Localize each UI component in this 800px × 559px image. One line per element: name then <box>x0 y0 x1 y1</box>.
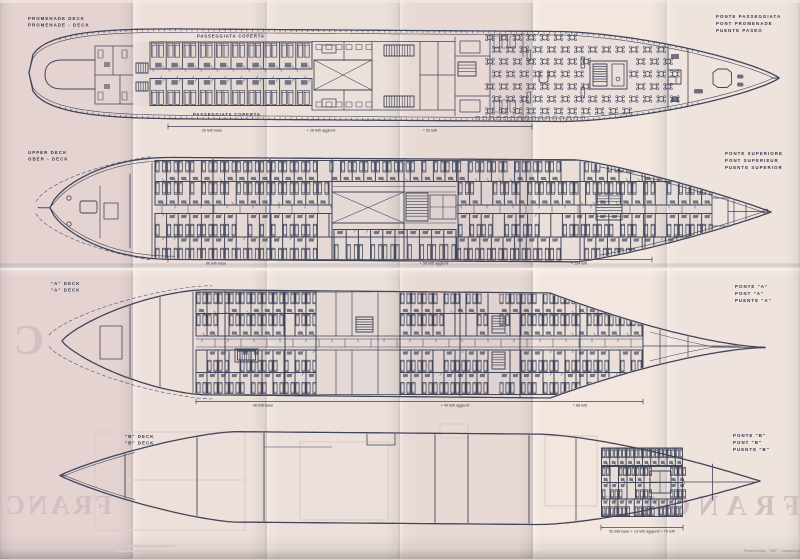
svg-text:PASSEGGIATA COPERTA: PASSEGGIATA COPERTA <box>193 112 261 117</box>
svg-text:= 154 letti: = 154 letti <box>571 262 588 266</box>
svg-text:+ 58 letti aggiunti: + 58 letti aggiunti <box>420 262 449 266</box>
svg-text:+ 40 letti aggiunti: + 40 letti aggiunti <box>441 404 470 408</box>
svg-text:PUENTE "A": PUENTE "A" <box>735 298 772 303</box>
svg-text:48 letti base: 48 letti base <box>253 404 273 408</box>
svg-text:Printed in Italy - "LIST" - Ge: Printed in Italy - "LIST" - Genova Foce <box>744 549 800 553</box>
svg-text:= 52 letti: = 52 letti <box>423 129 438 133</box>
svg-text:PASSEGGIATA COPERTA: PASSEGGIATA COPERTA <box>197 34 265 39</box>
svg-text:UPPER DECK: UPPER DECK <box>28 150 67 155</box>
svg-text:PONT "B": PONT "B" <box>733 440 762 445</box>
svg-text:"A" DECK: "A" DECK <box>51 281 80 286</box>
svg-text:C: C <box>14 318 44 364</box>
svg-text:PONT PROMENADE: PONT PROMENADE <box>716 21 773 26</box>
svg-text:+ 26 letti aggiunti: + 26 letti aggiunti <box>307 129 336 133</box>
svg-text:26 letti base: 26 letti base <box>202 129 222 133</box>
svg-text:PUENTE "B": PUENTE "B" <box>733 447 770 452</box>
svg-text:= 88 letti: = 88 letti <box>573 404 588 408</box>
svg-text:PROMENADE - DECK: PROMENADE - DECK <box>28 23 90 28</box>
svg-text:PONT SUPERIEUR: PONT SUPERIEUR <box>725 158 779 163</box>
svg-text:PONTE PASSEGGIATA: PONTE PASSEGGIATA <box>716 14 781 19</box>
svg-text:PUENTE PASEO: PUENTE PASEO <box>716 28 763 33</box>
svg-text:PONT "A": PONT "A" <box>735 291 764 296</box>
svg-text:OBER - DECK: OBER - DECK <box>28 157 69 162</box>
svg-text:96 letti base: 96 letti base <box>206 262 226 266</box>
svg-text:"A" DECK: "A" DECK <box>51 288 80 293</box>
svg-text:PONTE SUPERIORE: PONTE SUPERIORE <box>725 151 783 156</box>
svg-text:PONTE "A": PONTE "A" <box>735 284 768 289</box>
svg-text:"B" DECK: "B" DECK <box>125 441 154 446</box>
svg-text:PONTE "B": PONTE "B" <box>733 433 766 438</box>
svg-text:"B" DECK: "B" DECK <box>125 434 154 439</box>
svg-text:PUENTE SUPERIOR: PUENTE SUPERIOR <box>725 165 783 170</box>
svg-text:52 letti base + 13 letti aggiu: 52 letti base + 13 letti aggiunti = 75 l… <box>609 530 675 534</box>
svg-text:PROMENADE DECK: PROMENADE DECK <box>28 16 85 21</box>
